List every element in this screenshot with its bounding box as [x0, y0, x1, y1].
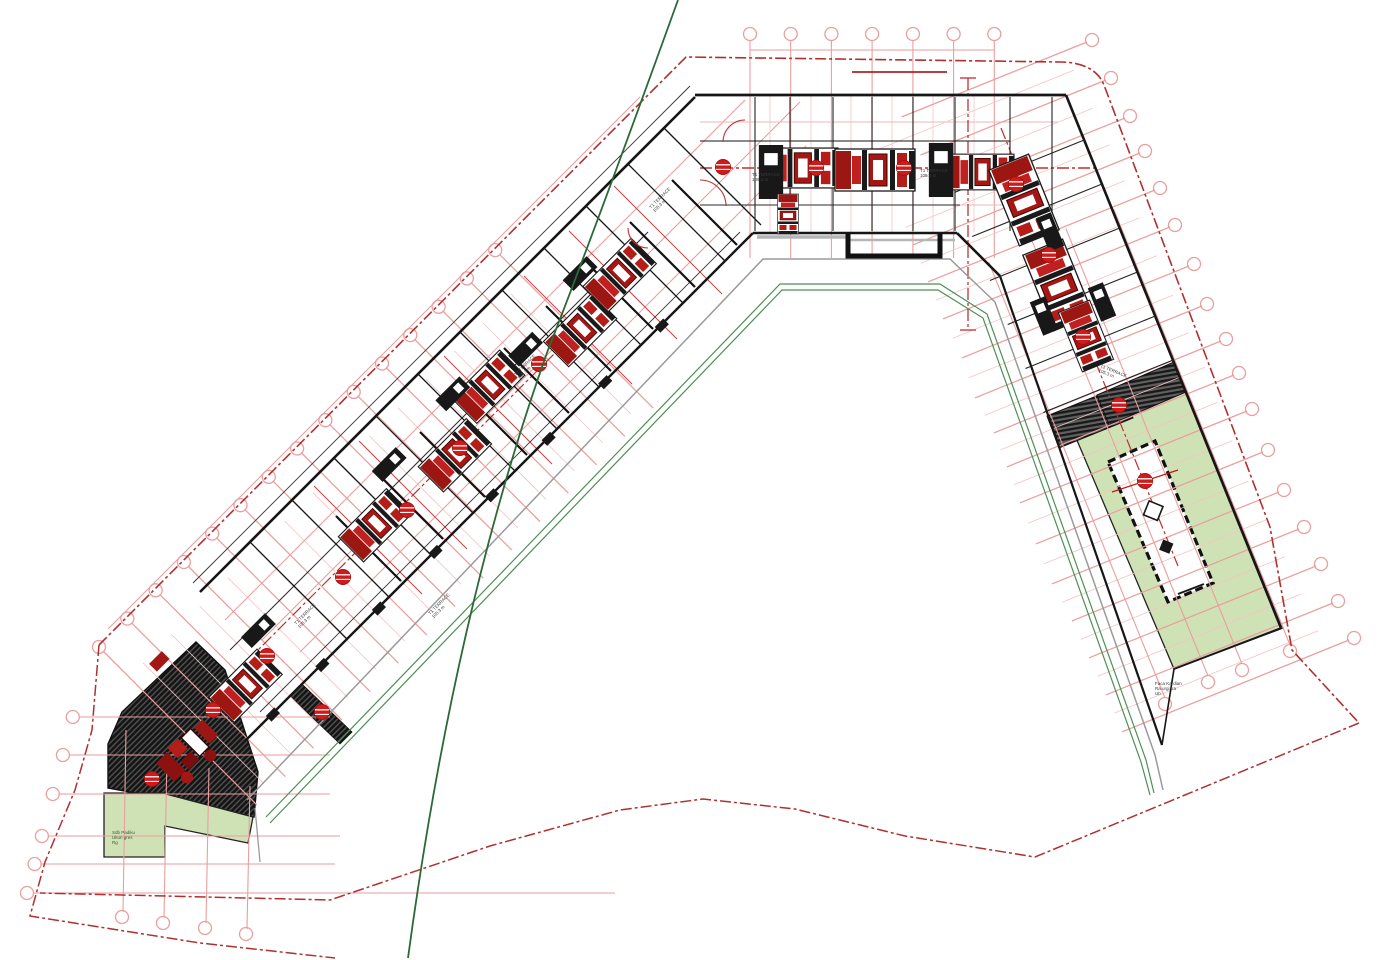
svg-text:Ub: Ub — [1155, 691, 1161, 696]
svg-text:Rg: Rg — [112, 840, 118, 845]
svg-text:105.3 m: 105.3 m — [920, 173, 937, 178]
svg-text:105.3 m: 105.3 m — [752, 177, 769, 182]
